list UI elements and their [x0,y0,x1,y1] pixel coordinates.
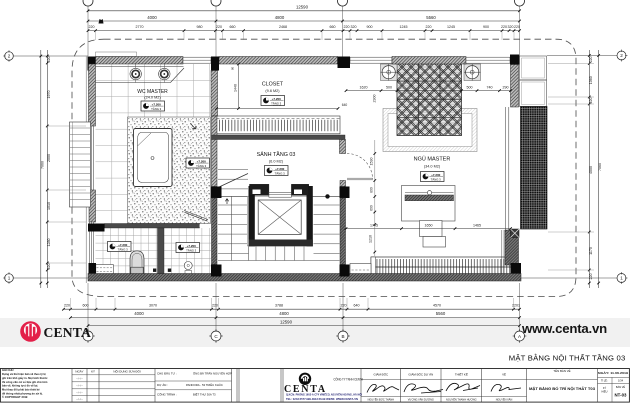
svg-text:660: 660 [230,25,236,29]
svg-text:TÊN BẢN VẼ: TÊN BẢN VẼ [553,368,570,373]
svg-text:5560: 5560 [426,15,436,20]
svg-text:220: 220 [47,264,51,270]
svg-text:(34.0 M2): (34.0 M2) [424,165,441,169]
svg-text:GIÁM ĐỐC: GIÁM ĐỐC [373,371,388,376]
svg-text:GIÁM ĐỐC DỰ ÁN: GIÁM ĐỐC DỰ ÁN [408,371,433,376]
svg-text:7060: 7060 [40,161,44,169]
svg-text:2: 2 [620,53,623,58]
svg-text:1245: 1245 [447,25,455,29]
svg-text:4800: 4800 [275,15,285,20]
svg-text:220: 220 [212,304,218,308]
svg-text:NGỦ MASTER: NGỦ MASTER [414,156,451,163]
svg-text:220: 220 [589,98,593,104]
svg-text:để thống nhất phương án xử lý.: để thống nhất phương án xử lý. [2,391,43,395]
svg-text:1440: 1440 [234,84,238,92]
svg-text:1010: 1010 [47,202,51,210]
svg-text:CENTA: CENTA [44,325,92,340]
svg-text:220: 220 [514,25,520,29]
svg-text:2300: 2300 [373,95,377,103]
svg-text:www.centa.vn: www.centa.vn [521,321,607,336]
svg-text:220: 220 [501,25,507,29]
svg-text:1210: 1210 [369,235,373,243]
svg-text:NỘI DUNG SỬA ĐỔI: NỘI DUNG SỬA ĐỔI [113,369,141,374]
svg-text:2000: 2000 [47,154,51,162]
svg-text:ÔNG BÀ TRẦN NGUYÊN HỢP: ÔNG BÀ TRẦN NGUYÊN HỢP [193,371,232,376]
svg-text:(6.0 M2): (6.0 M2) [269,159,284,163]
svg-text:2: 2 [8,54,11,59]
svg-text:TẦNG 3: TẦNG 3 [431,178,442,182]
svg-text:TẦNG 3: TẦNG 3 [186,249,197,253]
svg-text:SẢNH TẦNG 03: SẢNH TẦNG 03 [257,151,296,158]
svg-text:HIỆU: HIỆU [602,391,608,394]
svg-text:© COPYRIGHT 2019: © COPYRIGHT 2019 [2,395,28,399]
svg-text:220: 220 [341,304,347,308]
svg-text:640: 640 [342,103,348,107]
svg-text:800: 800 [370,187,374,193]
svg-text:3070: 3070 [149,304,157,308]
svg-text:1280: 1280 [47,239,51,247]
svg-text:KÝ: KÝ [91,370,95,374]
svg-text:+7.200: +7.200 [187,244,197,248]
svg-text:7060: 7060 [598,163,602,171]
svg-text:2468: 2468 [279,25,287,29]
svg-text:220: 220 [89,25,95,29]
svg-text:+7.200: +7.200 [431,173,441,177]
svg-text:1465: 1465 [473,223,481,227]
svg-text:PANDORA - 53 TRIỀU KHÚC: PANDORA - 53 TRIỀU KHÚC [186,382,223,387]
svg-text:BIỆT THỰ 30A T3: BIỆT THỰ 30A T3 [193,392,216,397]
svg-text:MẶT BẰNG BỐ TRÍ NỘI THẤT T03: MẶT BẰNG BỐ TRÍ NỘI THẤT T03 [529,386,595,391]
svg-text:640: 640 [354,304,360,308]
svg-text:220: 220 [216,25,222,29]
svg-text:Mọi thay đổi phải báo thiết kế: Mọi thay đổi phải báo thiết kế [2,387,40,391]
svg-text:CHỦ ĐẦU TƯ :: CHỦ ĐẦU TƯ : [157,371,177,376]
svg-text:VƯƠNG VĂN DƯƠNG: VƯƠNG VĂN DƯƠNG [408,398,434,401]
svg-text:660: 660 [330,25,336,29]
svg-text:740: 740 [487,85,493,89]
svg-text:THIẾT KẾ: THIẾT KẾ [455,371,468,376]
svg-text:TEL: 0243.5577.999-0913.56.99: TEL: 0243.5577.999-0913.56.99 WEBS: WWW.… [286,398,358,401]
svg-text:TẦNG 3: TẦNG 3 [275,172,286,176]
svg-text:TẦNG 3: TẦNG 3 [151,107,162,111]
svg-text:1650: 1650 [425,223,433,227]
svg-text:1970: 1970 [47,91,51,99]
svg-text:1: 1 [620,276,623,281]
svg-text:4570: 4570 [433,304,441,308]
svg-text:4800: 4800 [279,311,289,316]
svg-text:TỈ LỆ :: TỈ LỆ : [601,380,609,383]
svg-text:TẦNG 3: TẦNG 3 [196,164,207,168]
svg-text:1170: 1170 [589,247,593,255]
svg-text:CLOSET: CLOSET [262,82,284,88]
svg-text:NGUYỄN ĐỨC THÀNH: NGUYỄN ĐỨC THÀNH [368,398,395,401]
svg-text:980: 980 [197,25,203,29]
svg-text:NGÀY: NGÀY [75,370,83,374]
svg-text:220: 220 [47,57,51,63]
svg-text:500: 500 [386,85,392,89]
svg-text:1: 1 [8,276,11,281]
svg-text:500: 500 [467,85,473,89]
svg-text:600: 600 [370,205,374,211]
svg-text:NGUYỄN VĂN: NGUYỄN VĂN [496,398,513,401]
svg-text:Q.KCN: PHÒNG 1602-A CT4 VIMẾCO: Q.KCN: PHÒNG 1602-A CT4 VIMẾCO, NGUYỄN H… [286,393,362,396]
svg-text:BẢN VẼ: BẢN VẼ [616,386,626,389]
svg-text:600: 600 [83,304,89,308]
svg-text:220: 220 [344,25,350,29]
svg-text:+7.200: +7.200 [118,243,128,247]
svg-text:900: 900 [483,25,489,29]
svg-text:ghi trên khổ giấy in. Mọi kích: ghi trên khổ giấy in. Mọi kích thước [2,376,48,380]
svg-text:220: 220 [589,57,593,63]
svg-text:--/--/--: --/--/-- [76,390,83,394]
svg-text:1530: 1530 [370,158,374,166]
svg-text:MẶT BẰNG NỘI THẤT TẦNG 03: MẶT BẰNG NỘI THẤT TẦNG 03 [509,352,626,362]
svg-text:(24.0 M2): (24.0 M2) [144,95,161,99]
svg-text:2770: 2770 [136,25,144,29]
svg-text:Dựng và thể hiện bản vẽ theo t: Dựng và thể hiện bản vẽ theo tỷ lệ [2,372,46,376]
svg-text:1620: 1620 [360,85,368,89]
svg-text:1/34: 1/34 [618,379,624,383]
svg-text:--/--/--: --/--/-- [76,397,83,401]
svg-text:220: 220 [64,304,70,308]
svg-text:900: 900 [367,25,373,29]
svg-text:1245: 1245 [400,25,408,29]
svg-text:12590: 12590 [280,319,293,324]
svg-text:3788: 3788 [275,304,283,308]
svg-text:4000: 4000 [589,166,593,174]
svg-text:290: 290 [503,85,509,89]
svg-text:4000: 4000 [134,311,144,316]
svg-text:+7.200: +7.200 [275,167,285,171]
svg-text:220: 220 [589,274,593,280]
svg-text:220: 220 [426,25,432,29]
svg-text:B: B [341,334,344,339]
svg-text:thi công căn cứ số liệu ghi ch: thi công căn cứ số liệu ghi chú trên [2,380,48,384]
svg-text:CÔNG TY TNHH CENTA: CÔNG TY TNHH CENTA [334,377,364,382]
svg-text:VẼ: VẼ [502,371,506,376]
svg-text:WC MASTER: WC MASTER [137,89,168,95]
svg-text:1060: 1060 [589,76,593,84]
svg-text:CÔNG TRÌNH :: CÔNG TRÌNH : [157,392,177,397]
svg-text:+7.200: +7.200 [272,97,282,101]
svg-text:NGUYỄN THANH HƯƠNG: NGUYỄN THANH HƯƠNG [446,398,477,401]
svg-text:2201: 2201 [512,304,520,308]
svg-text:320: 320 [508,25,514,29]
svg-text:--/--/--: --/--/-- [76,383,83,387]
svg-text:12590: 12590 [296,5,309,10]
svg-text:DỰ ÁN :: DỰ ÁN : [157,383,168,387]
svg-text:--/--/--: --/--/-- [76,376,83,380]
svg-text:GHI CHÚ:: GHI CHÚ: [2,367,14,372]
svg-text:+7.200: +7.200 [152,102,162,106]
svg-text:+7.200: +7.200 [197,159,207,163]
svg-text:NT-03: NT-03 [615,393,628,398]
svg-text:90: 90 [231,67,235,71]
svg-text:320: 320 [351,25,357,29]
svg-text:(9.6 M2): (9.6 M2) [265,89,280,93]
svg-text:TẦNG 3: TẦNG 3 [271,102,282,106]
svg-text:4000: 4000 [147,15,157,20]
svg-text:TẦNG 3: TẦNG 3 [118,248,129,252]
svg-text:bản vẽ, không tự ý đo vẽ lại.: bản vẽ, không tự ý đo vẽ lại. [2,384,38,388]
svg-text:5560: 5560 [436,311,446,316]
